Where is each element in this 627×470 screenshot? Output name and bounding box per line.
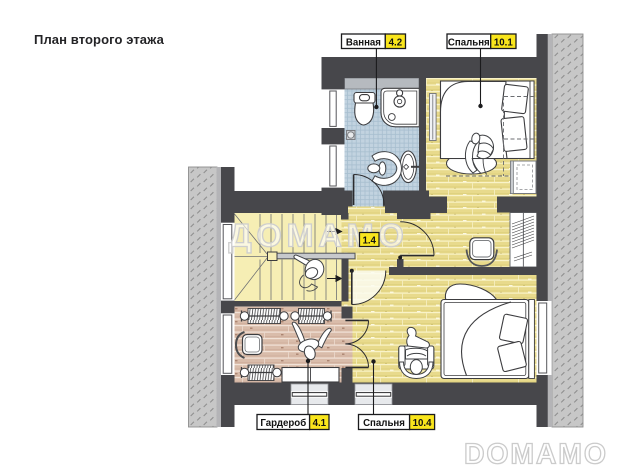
svg-text:Ванная: Ванная <box>346 37 381 48</box>
svg-text:4.2: 4.2 <box>389 37 402 48</box>
svg-text:DOMAMO: DOMAMO <box>464 439 608 470</box>
svg-text:10.1: 10.1 <box>494 37 513 48</box>
svg-text:Гардероб: Гардероб <box>260 418 306 429</box>
svg-text:4.1: 4.1 <box>313 418 327 429</box>
svg-text:Спальня: Спальня <box>448 37 490 48</box>
svg-text:План второго этажа: План второго этажа <box>34 32 165 47</box>
svg-text:ДОМАМО: ДОМАМО <box>229 218 409 254</box>
svg-text:1.4: 1.4 <box>362 235 376 246</box>
svg-text:Спальня: Спальня <box>363 418 405 429</box>
svg-text:10.4: 10.4 <box>413 418 432 429</box>
